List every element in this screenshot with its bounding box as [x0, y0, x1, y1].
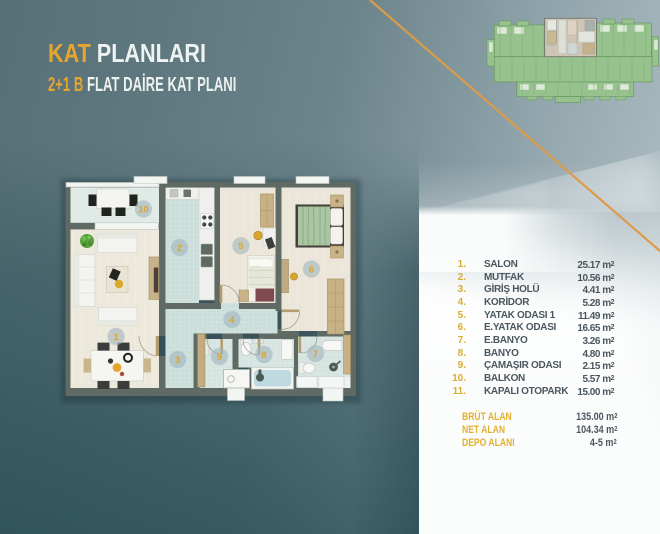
svg-text:9: 9	[217, 352, 222, 363]
svg-text:4: 4	[229, 315, 235, 326]
svg-text:8: 8	[261, 350, 266, 361]
svg-text:2: 2	[177, 243, 182, 254]
svg-text:6: 6	[309, 264, 314, 275]
svg-text:3: 3	[175, 355, 180, 366]
svg-text:10: 10	[138, 204, 149, 215]
svg-text:7: 7	[313, 349, 318, 360]
svg-text:5: 5	[238, 241, 244, 252]
svg-text:1: 1	[113, 332, 119, 343]
